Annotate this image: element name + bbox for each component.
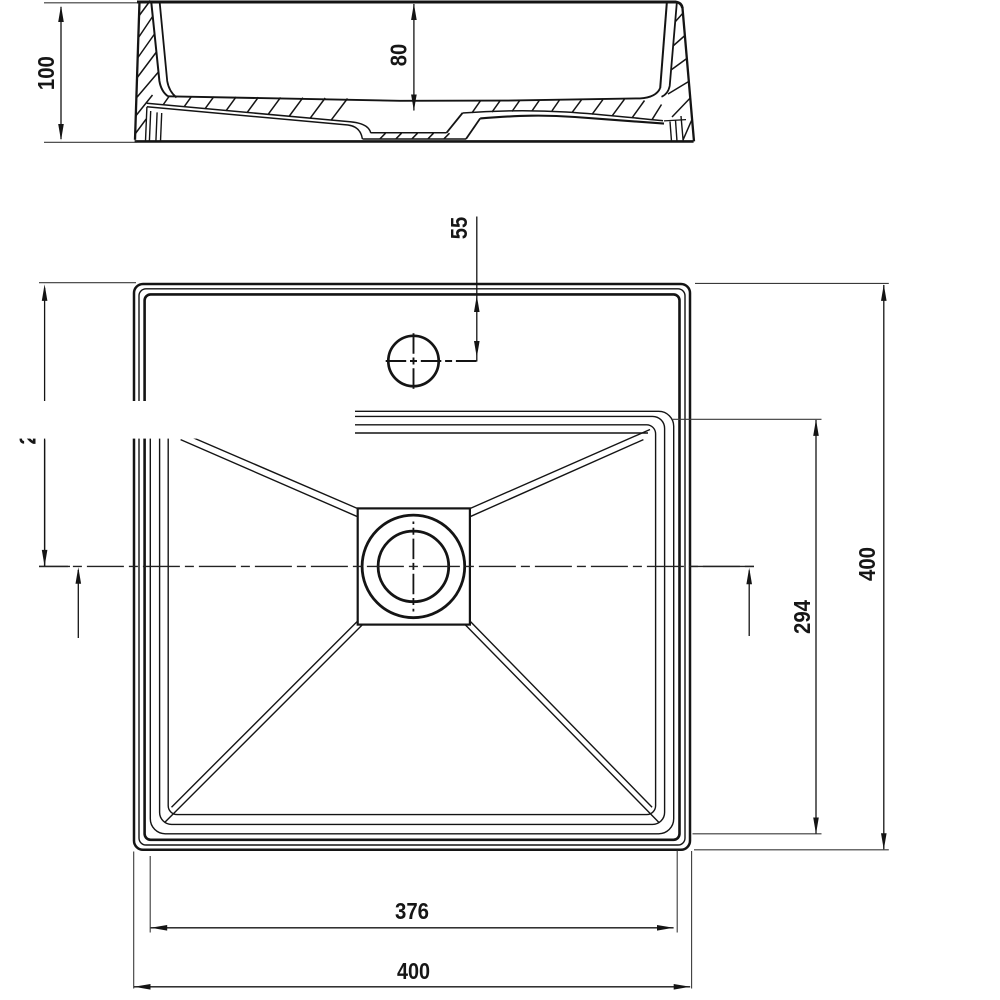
svg-text:294: 294 [789,600,815,634]
svg-text:376: 376 [395,898,429,924]
svg-text:400: 400 [397,958,430,984]
svg-text:100: 100 [33,56,59,90]
svg-text:80: 80 [385,44,411,67]
svg-text:400: 400 [854,547,880,581]
svg-text:55: 55 [446,217,472,240]
